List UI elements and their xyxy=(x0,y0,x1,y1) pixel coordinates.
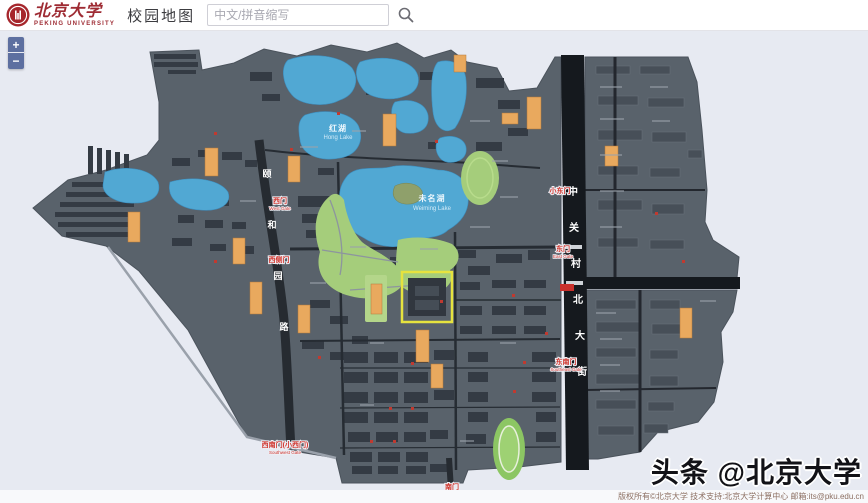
selected-building[interactable] xyxy=(402,272,452,322)
pku-seal-logo xyxy=(6,3,30,27)
street-char: 路 xyxy=(279,321,289,332)
hong-lake-label-cn: 红湖 xyxy=(329,123,347,133)
search-icon xyxy=(397,6,415,24)
map-zoom-controls: + − xyxy=(8,37,24,69)
logo-en-text: PEKING UNIVERSITY xyxy=(34,21,115,27)
gate-southeast: 东南门 xyxy=(556,357,577,366)
gate-west: 西门 xyxy=(273,196,287,205)
street-char: 和 xyxy=(266,219,276,230)
logo-wordmark: 北京大学 PEKING UNIVERSITY xyxy=(34,4,115,27)
search-bar xyxy=(207,4,415,26)
header-bar: 北京大学 PEKING UNIVERSITY 校园地图 xyxy=(0,0,868,31)
map-viewport[interactable]: 中 关 村 北 大 街 颐 和 园 路 未名湖 Weiming Lake 红湖 … xyxy=(0,30,868,503)
gate-southeast-en: Southeast Gate xyxy=(550,367,582,372)
page-title: 校园地图 xyxy=(127,5,195,26)
gate-east: 东门 xyxy=(556,244,570,253)
street-char: 关 xyxy=(569,221,579,234)
search-button[interactable] xyxy=(397,6,415,24)
gate-east-en: East Gate xyxy=(553,254,574,259)
toutiao-watermark: 头条 @北京大学 xyxy=(651,451,862,491)
gate-southwest-en: Southwest Gate xyxy=(269,450,302,455)
street-char: 颐 xyxy=(262,169,271,179)
logo-cn-text: 北京大学 xyxy=(34,4,115,20)
street-char: 园 xyxy=(273,271,282,281)
weiming-lake-label-en: Weiming Lake xyxy=(413,206,452,212)
hong-lake-label-en: Hong Lake xyxy=(323,135,353,141)
zoom-out-button[interactable]: − xyxy=(8,53,24,69)
weiming-lake-label-cn: 未名湖 xyxy=(418,193,446,203)
gate-small-east: 小东门 xyxy=(549,186,571,195)
copyright-footer: 版权所有©北京大学 技术支持:北京大学计算中心 邮箱:its@pku.edu.c… xyxy=(0,490,868,503)
street-char: 大 xyxy=(575,329,585,342)
search-input[interactable] xyxy=(207,4,389,26)
gate-west-en: West Gate xyxy=(269,206,291,211)
gate-marker xyxy=(560,284,574,291)
campus-map-canvas[interactable]: 中 关 村 北 大 街 颐 和 园 路 未名湖 Weiming Lake 红湖 … xyxy=(0,30,868,503)
gate-west-side: 西侧门 xyxy=(269,255,290,264)
zoom-in-button[interactable]: + xyxy=(8,37,24,53)
campus-map-app: 北京大学 PEKING UNIVERSITY 校园地图 xyxy=(0,0,868,503)
gate-southwest: 西南门(小西门) xyxy=(262,440,309,449)
street-char: 北 xyxy=(573,293,583,306)
